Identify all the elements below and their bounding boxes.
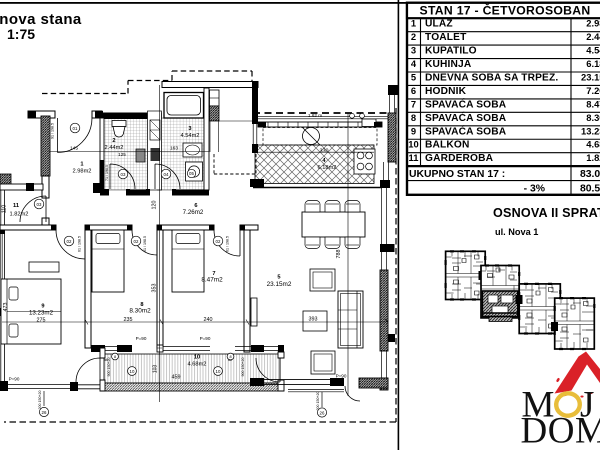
svg-text:7: 7: [411, 98, 416, 109]
svg-text:23.15: 23.15: [581, 71, 600, 82]
svg-text:61 / 198.5: 61 / 198.5: [143, 236, 147, 252]
svg-text:6: 6: [411, 85, 416, 96]
svg-text:7.26m2: 7.26m2: [183, 209, 204, 216]
svg-text:330: 330: [320, 149, 329, 155]
svg-text:7.26: 7.26: [586, 85, 600, 96]
svg-text:1.62 m: 1.62 m: [308, 113, 322, 118]
svg-text:61 / 198.5: 61 / 198.5: [226, 236, 230, 252]
svg-text:61 / 198.5: 61 / 198.5: [78, 236, 82, 252]
svg-text:10: 10: [130, 369, 135, 374]
svg-text:275: 275: [37, 318, 46, 324]
svg-text:10: 10: [194, 355, 200, 361]
svg-text:2: 2: [112, 138, 115, 144]
svg-text:DNEVNA SOBA SA TRPEZ.: DNEVNA SOBA SA TRPEZ.: [425, 72, 558, 83]
svg-text:3: 3: [411, 45, 416, 56]
svg-text:353: 353: [152, 284, 158, 293]
svg-text:8: 8: [411, 112, 416, 123]
svg-text:8.47: 8.47: [586, 98, 600, 109]
svg-text:2.44m2: 2.44m2: [105, 145, 124, 151]
svg-text:- 3%: - 3%: [524, 183, 545, 194]
svg-text:02: 02: [134, 239, 139, 244]
svg-text:2: 2: [411, 31, 416, 42]
svg-text:UKUPNO STAN 17 :: UKUPNO STAN 17 :: [409, 169, 505, 180]
svg-text:02: 02: [216, 239, 221, 244]
svg-text:459: 459: [172, 375, 181, 381]
svg-text:SPAVAĆA SOBA: SPAVAĆA SOBA: [425, 97, 507, 110]
svg-text:473: 473: [3, 303, 9, 312]
svg-text:ULAZ: ULAZ: [425, 19, 453, 30]
svg-text:BALKON: BALKON: [425, 140, 469, 151]
svg-text:03: 03: [121, 172, 126, 177]
svg-text:GARDEROBA: GARDEROBA: [425, 153, 494, 164]
svg-text:DOM: DOM: [521, 411, 600, 450]
svg-text:SPAVAĆA SOBA: SPAVAĆA SOBA: [425, 111, 507, 124]
svg-text:8.30: 8.30: [586, 112, 600, 123]
svg-text:P=90: P=90: [336, 374, 347, 379]
svg-text:163: 163: [170, 146, 178, 152]
svg-text:05: 05: [189, 171, 194, 176]
svg-text:8.47m2: 8.47m2: [201, 277, 223, 284]
svg-text:3: 3: [188, 126, 191, 132]
svg-text:235: 235: [124, 317, 133, 323]
svg-text:1:75: 1:75: [7, 26, 35, 42]
svg-text:4.54m2: 4.54m2: [181, 133, 200, 139]
svg-text:240: 240: [204, 317, 213, 323]
svg-text:P=90: P=90: [200, 336, 211, 341]
svg-text:9: 9: [411, 125, 416, 136]
svg-text:200 150+20: 200 150+20: [38, 390, 42, 409]
svg-text:1: 1: [80, 162, 83, 168]
svg-text:4.54: 4.54: [586, 45, 600, 56]
svg-text:10: 10: [408, 139, 418, 150]
svg-text:P=90: P=90: [136, 336, 147, 341]
svg-text:4.68: 4.68: [586, 139, 600, 150]
svg-text:KUHINJA: KUHINJA: [425, 59, 472, 70]
svg-text:200 150+20: 200 150+20: [316, 391, 320, 410]
svg-text:80.56: 80.56: [580, 183, 600, 194]
svg-text:125: 125: [118, 152, 126, 157]
svg-text:120: 120: [152, 201, 158, 210]
svg-text:04: 04: [164, 172, 169, 177]
svg-text:1.82: 1.82: [586, 152, 600, 163]
svg-text:8.30m2: 8.30m2: [129, 308, 151, 315]
svg-text:4.68m2: 4.68m2: [188, 362, 207, 368]
svg-text:2.44: 2.44: [586, 31, 600, 42]
svg-text:8: 8: [114, 355, 116, 359]
svg-text:11: 11: [13, 203, 19, 209]
svg-text:2.98: 2.98: [586, 18, 600, 29]
svg-text:SPAVAĆA SOBA: SPAVAĆA SOBA: [425, 124, 507, 137]
svg-text:02: 02: [67, 239, 72, 244]
svg-text:1.82m2: 1.82m2: [10, 212, 29, 218]
svg-text:HODNIK: HODNIK: [425, 86, 467, 97]
svg-text:6.18m2: 6.18m2: [318, 165, 337, 171]
svg-text:788: 788: [336, 250, 342, 259]
svg-text:STAN 17 - ČETVOROSOBAN: STAN 17 - ČETVOROSOBAN: [420, 3, 591, 18]
svg-text:P=90: P=90: [9, 377, 20, 382]
svg-text:11: 11: [409, 152, 419, 163]
svg-text:110: 110: [2, 205, 8, 214]
svg-text:4: 4: [411, 58, 417, 69]
svg-text:26: 26: [320, 410, 325, 415]
svg-text:145: 145: [70, 146, 78, 152]
svg-text:393: 393: [309, 317, 318, 323]
svg-text:103: 103: [153, 365, 159, 374]
svg-text:03: 03: [37, 202, 42, 207]
svg-text:26: 26: [42, 410, 47, 415]
svg-text:83.05: 83.05: [580, 169, 600, 180]
svg-text:TOALET: TOALET: [425, 32, 467, 43]
svg-text:10: 10: [216, 369, 221, 374]
svg-text:5: 5: [277, 275, 280, 281]
svg-text:ul. Nova 1: ul. Nova 1: [495, 227, 538, 237]
svg-text:13.23m2: 13.23m2: [29, 310, 54, 317]
svg-text:5: 5: [411, 71, 416, 82]
svg-text:2.98m2: 2.98m2: [73, 169, 92, 175]
svg-text:01: 01: [73, 126, 78, 131]
svg-text:900 150+20: 900 150+20: [241, 357, 245, 376]
svg-text:KUPATILO: KUPATILO: [425, 46, 477, 57]
svg-text:91 / 198.5: 91 / 198.5: [51, 123, 55, 139]
svg-text:ab: ab: [104, 358, 108, 362]
svg-text:71 / 198.5: 71 / 198.5: [105, 165, 109, 181]
svg-text:1: 1: [411, 18, 416, 29]
svg-text:13.23: 13.23: [581, 125, 600, 136]
svg-text:8: 8: [229, 355, 231, 359]
svg-text:6.18: 6.18: [586, 58, 600, 69]
svg-text:23.15m2: 23.15m2: [267, 281, 292, 288]
svg-text:OSNOVA II SPRATA: OSNOVA II SPRATA: [493, 206, 600, 220]
